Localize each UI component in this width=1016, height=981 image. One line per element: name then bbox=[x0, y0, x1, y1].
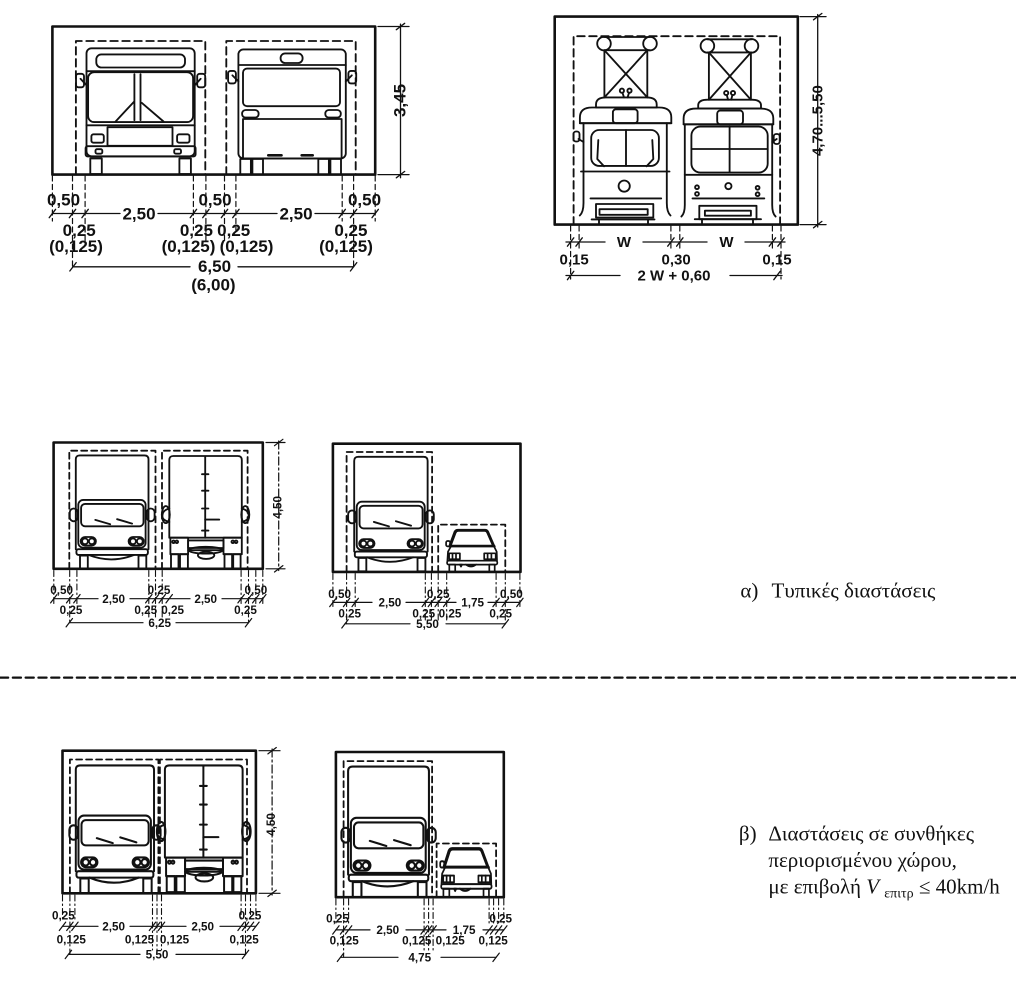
svg-text:0,25: 0,25 bbox=[60, 604, 83, 617]
svg-text:W: W bbox=[617, 234, 632, 251]
svg-text:(0,125): (0,125) bbox=[162, 237, 216, 256]
svg-text:Τυπικές διαστάσεις: Τυπικές διαστάσεις bbox=[772, 578, 937, 602]
svg-text:0,125: 0,125 bbox=[125, 934, 155, 947]
svg-text:0,25: 0,25 bbox=[134, 604, 157, 617]
svg-text:2,50: 2,50 bbox=[279, 205, 312, 224]
svg-text:0,50: 0,50 bbox=[198, 191, 231, 210]
svg-text:4,50: 4,50 bbox=[265, 813, 278, 836]
svg-text:0,125: 0,125 bbox=[57, 934, 87, 947]
svg-text:0,15: 0,15 bbox=[559, 251, 588, 268]
svg-text:0,25: 0,25 bbox=[239, 909, 262, 922]
svg-text:0,25: 0,25 bbox=[489, 608, 512, 621]
svg-text:5,50: 5,50 bbox=[416, 618, 439, 631]
svg-text:0,50: 0,50 bbox=[50, 584, 73, 597]
svg-text:β): β) bbox=[739, 821, 757, 845]
svg-text:0,25: 0,25 bbox=[338, 608, 361, 621]
svg-text:2 W + 0,60: 2 W + 0,60 bbox=[638, 268, 711, 285]
svg-text:α): α) bbox=[740, 578, 758, 602]
svg-text:4,50: 4,50 bbox=[272, 495, 285, 518]
svg-text:(6,00): (6,00) bbox=[191, 275, 235, 294]
svg-text:(0,125): (0,125) bbox=[49, 237, 103, 256]
svg-text:0,25: 0,25 bbox=[427, 588, 450, 601]
svg-text:W: W bbox=[719, 234, 734, 251]
svg-text:2,50: 2,50 bbox=[194, 593, 217, 606]
svg-text:1,75: 1,75 bbox=[461, 597, 484, 610]
svg-text:Διαστάσεις σε συνθήκες: Διαστάσεις σε συνθήκες bbox=[768, 821, 974, 845]
svg-text:0,25: 0,25 bbox=[148, 584, 171, 597]
svg-text:0,25: 0,25 bbox=[439, 608, 462, 621]
svg-text:(0,125): (0,125) bbox=[319, 237, 373, 256]
svg-text:3,45: 3,45 bbox=[391, 84, 410, 117]
svg-text:0,125: 0,125 bbox=[478, 935, 508, 948]
svg-text:5,50: 5,50 bbox=[146, 949, 169, 962]
svg-text:0,25: 0,25 bbox=[161, 604, 184, 617]
svg-text:0,50: 0,50 bbox=[348, 191, 381, 210]
svg-text:0,25: 0,25 bbox=[489, 913, 512, 926]
svg-text:4,75: 4,75 bbox=[408, 952, 431, 965]
svg-text:0,50: 0,50 bbox=[328, 588, 351, 601]
svg-text:0,25: 0,25 bbox=[234, 604, 257, 617]
svg-text:περιορισμένου χώρου,: περιορισμένου χώρου, bbox=[768, 848, 957, 872]
svg-text:0,125: 0,125 bbox=[436, 935, 466, 948]
svg-text:0,25: 0,25 bbox=[326, 913, 349, 926]
svg-text:0,15: 0,15 bbox=[762, 251, 791, 268]
svg-text:0,125: 0,125 bbox=[330, 935, 360, 948]
svg-text:0,125: 0,125 bbox=[229, 934, 259, 947]
svg-text:(0,125): (0,125) bbox=[220, 237, 274, 256]
svg-text:2,50: 2,50 bbox=[102, 921, 125, 934]
svg-text:2,50: 2,50 bbox=[376, 924, 399, 937]
svg-text:2,50: 2,50 bbox=[102, 593, 125, 606]
svg-text:6,25: 6,25 bbox=[148, 617, 171, 630]
svg-text:0,125: 0,125 bbox=[402, 935, 432, 948]
svg-text:2,50: 2,50 bbox=[379, 597, 402, 610]
svg-text:6,50: 6,50 bbox=[198, 257, 231, 276]
svg-text:0,125: 0,125 bbox=[160, 934, 190, 947]
svg-text:0,30: 0,30 bbox=[661, 251, 690, 268]
svg-text:2,50: 2,50 bbox=[122, 205, 155, 224]
svg-text:0,50: 0,50 bbox=[47, 191, 80, 210]
svg-text:2,50: 2,50 bbox=[191, 921, 214, 934]
svg-text:0,25: 0,25 bbox=[52, 909, 75, 922]
svg-text:4,70...5,50: 4,70...5,50 bbox=[810, 85, 827, 156]
svg-text:0,50: 0,50 bbox=[245, 584, 268, 597]
svg-text:0,50: 0,50 bbox=[500, 588, 523, 601]
